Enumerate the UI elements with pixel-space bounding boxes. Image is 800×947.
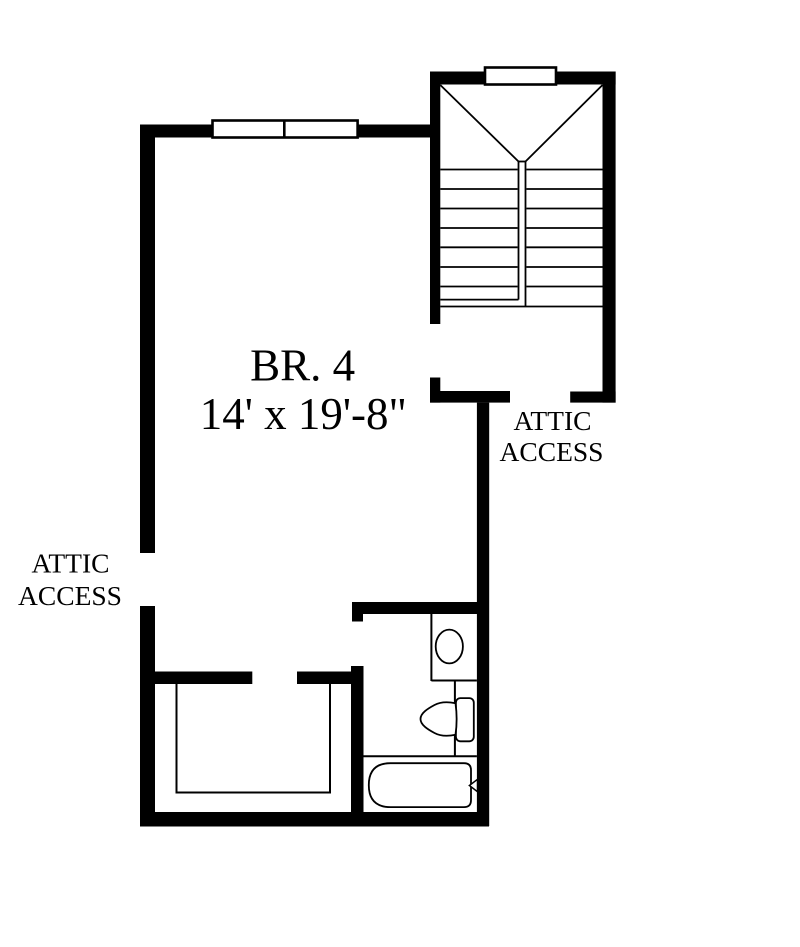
svg-text:ATTIC: ATTIC xyxy=(32,547,110,578)
svg-text:14' x 19'-8": 14' x 19'-8" xyxy=(200,389,407,439)
svg-text:ACCESS: ACCESS xyxy=(500,436,604,467)
svg-text:BR. 4: BR. 4 xyxy=(250,340,355,390)
svg-text:ACCESS: ACCESS xyxy=(18,580,122,611)
svg-text:ATTIC: ATTIC xyxy=(514,405,592,436)
